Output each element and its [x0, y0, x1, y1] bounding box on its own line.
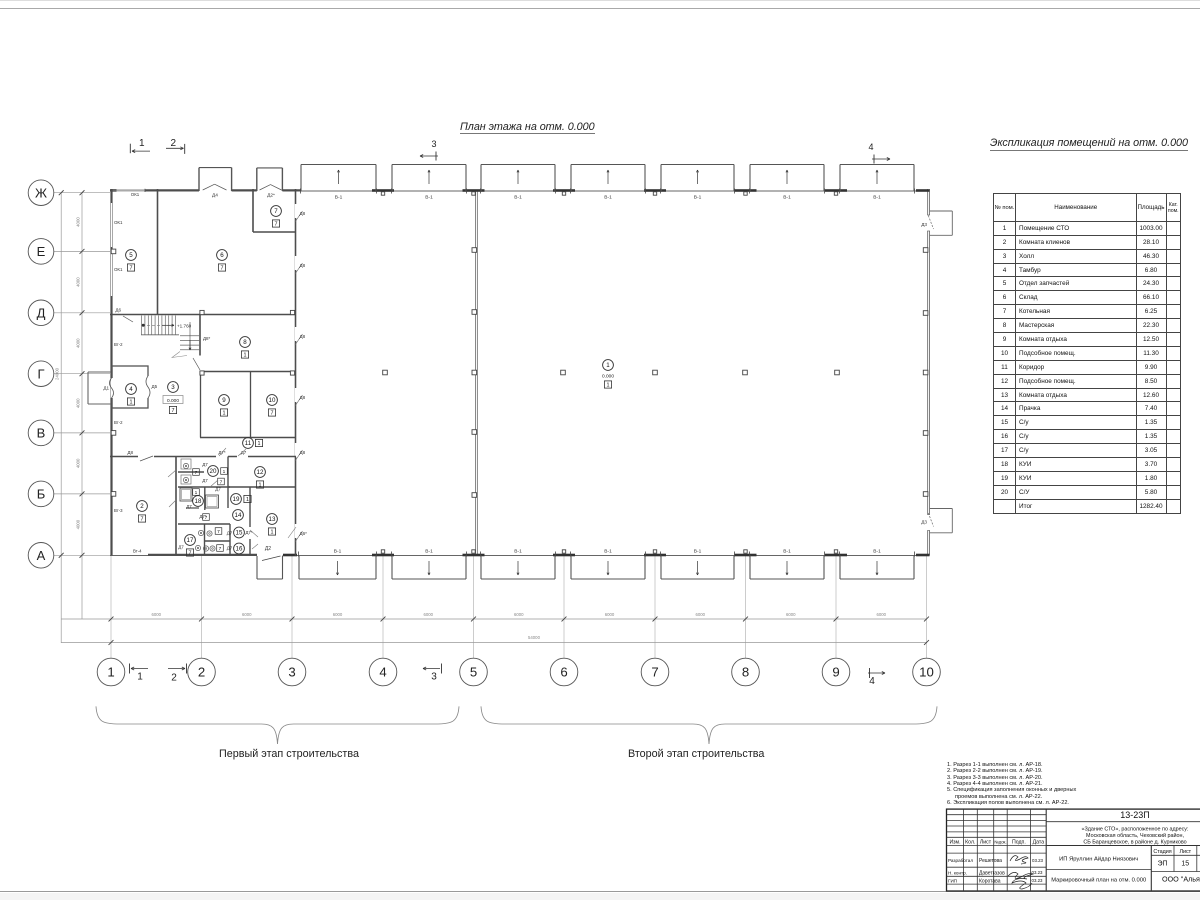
svg-text:15: 15 [1181, 861, 1189, 868]
svg-text:Подп.: Подп. [1012, 839, 1026, 845]
svg-text:СБ Баранцевское, в районе д. К: СБ Баранцевское, в районе д. Курниково [1083, 838, 1186, 845]
svg-text:ГИП: ГИП [948, 878, 957, 883]
svg-text:03.23: 03.23 [1032, 878, 1044, 883]
svg-text:Изм.: Изм. [949, 839, 960, 845]
svg-text:«Здание СТО», расположенное по: «Здание СТО», расположенное по адресу: [1082, 827, 1189, 833]
svg-text:13-23П: 13-23П [1120, 810, 1150, 820]
svg-text:03.23: 03.23 [1032, 858, 1044, 863]
svg-text:Даветгазов: Даветгазов [979, 871, 1005, 877]
svg-text:Кол.: Кол. [965, 839, 975, 845]
svg-text:Московская область, Чеховский: Московская область, Чеховский район, [1086, 832, 1184, 839]
svg-text:ИП Яруллин Айдар Ниязович: ИП Яруллин Айдар Ниязович [1059, 856, 1138, 863]
svg-text:ЭП: ЭП [1157, 861, 1167, 868]
svg-text:Дата: Дата [1033, 839, 1045, 845]
svg-text:Разработал: Разработал [948, 858, 973, 863]
svg-text:Лист: Лист [1179, 849, 1191, 855]
svg-text:Решетова: Решетова [979, 858, 1002, 864]
svg-text:Лист: Лист [980, 839, 992, 845]
svg-text:ООО "Альянс: ООО "Альянс [1162, 875, 1200, 884]
svg-text:Стадия: Стадия [1153, 849, 1171, 855]
svg-text:№док.: №док. [994, 839, 1006, 844]
svg-text:Н. контр.: Н. контр. [948, 871, 967, 876]
svg-text:Коротава: Коротава [979, 878, 1001, 884]
svg-text:Маркировочный план на отм. 0.0: Маркировочный план на отм. 0.000 [1051, 877, 1146, 884]
